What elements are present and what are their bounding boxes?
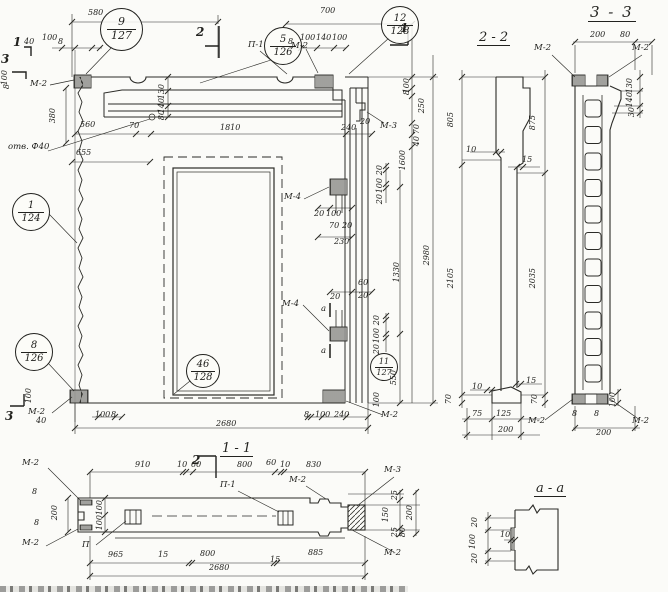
section-cut-number: 3 bbox=[1, 53, 9, 65]
dimension-label: 100 bbox=[373, 392, 381, 407]
dimension-label: 250 bbox=[418, 98, 426, 113]
dimension-label: 20 bbox=[376, 165, 384, 175]
dimension-label: 20 bbox=[376, 194, 384, 204]
dimension-label: 10 bbox=[472, 383, 482, 391]
dimension-label: 150 bbox=[382, 507, 390, 522]
detail-a-a-title: а - а bbox=[534, 482, 566, 497]
dimension-label: 100 bbox=[376, 178, 384, 193]
embed-label: М-2 bbox=[291, 42, 308, 51]
dimension-label: 100 bbox=[609, 392, 617, 407]
dimension-label: 40 bbox=[24, 38, 34, 46]
dimension-label: 10 bbox=[177, 461, 187, 469]
dimension-label: 80 bbox=[399, 527, 407, 537]
dimension-label: 100 bbox=[300, 34, 315, 42]
dimension-label: 125 bbox=[496, 410, 511, 418]
dimension-label: 875 bbox=[529, 115, 537, 130]
dimension-label: 1810 bbox=[220, 124, 240, 132]
dimension-label: 15 bbox=[270, 556, 280, 564]
dimension-label: 100 bbox=[96, 500, 104, 515]
dimension-label: 700 bbox=[320, 7, 335, 15]
dimension-label: 655 bbox=[76, 149, 91, 157]
dimension-label: 140 bbox=[316, 34, 331, 42]
detail-callout: 1 124 bbox=[12, 193, 50, 231]
callout-detail-number: 9 bbox=[107, 16, 137, 30]
dimension-label: 20 bbox=[314, 210, 324, 218]
dimension-label: 20 bbox=[373, 344, 381, 354]
dimension-label: 800 bbox=[200, 550, 215, 558]
dimension-label: 2680 bbox=[216, 420, 236, 428]
embed-label: М-3 bbox=[380, 122, 397, 131]
scan-artifact-strip bbox=[0, 586, 408, 592]
dimension-label: 240 bbox=[334, 411, 349, 419]
dimension-label: 10 bbox=[280, 461, 290, 469]
section-cut-number: 1 bbox=[13, 36, 21, 48]
embed-label: а bbox=[321, 347, 326, 356]
dimension-label: 100 bbox=[42, 34, 57, 42]
dimension-label: 805 bbox=[447, 112, 455, 127]
dimension-label: 20 bbox=[373, 315, 381, 325]
section-cut-number: 2 bbox=[196, 26, 204, 38]
embed-label: П-1 bbox=[248, 41, 264, 50]
dimension-label: 240 bbox=[341, 124, 356, 132]
embed-label: М-2 bbox=[632, 44, 649, 53]
dimension-label: 8 bbox=[32, 488, 37, 496]
section-1-1-title: 1 - 1 bbox=[220, 442, 253, 457]
dimension-label: 15 bbox=[522, 156, 532, 164]
dimension-label: 70 bbox=[329, 222, 339, 230]
blueprint-page: 2 - 2 3 - 3 1 - 1 а - а 9 127 5 126 12 1… bbox=[0, 0, 668, 592]
dimension-label: 8 bbox=[288, 38, 293, 46]
callout-sheet-number: 124 bbox=[18, 213, 44, 225]
dimension-label: 230 bbox=[334, 238, 349, 246]
dimension-label: 580 bbox=[88, 9, 103, 17]
dimension-label: 75 bbox=[472, 410, 482, 418]
callout-detail-number: 1 bbox=[18, 200, 44, 213]
embed-label: М-2 bbox=[384, 549, 401, 558]
dimension-label: 60 bbox=[358, 279, 368, 287]
dimension-label: 8 bbox=[111, 411, 116, 419]
embed-label: М-3 bbox=[384, 466, 401, 475]
dimension-label: 70 bbox=[531, 394, 539, 404]
callout-detail-number: 8 bbox=[21, 340, 47, 353]
embed-label: М-4 bbox=[284, 193, 301, 202]
callout-sheet-number: 127 bbox=[107, 30, 137, 43]
dimension-label: 100 bbox=[95, 411, 110, 419]
dimension-label: 130 bbox=[158, 84, 166, 99]
dimension-label: 100 bbox=[469, 534, 477, 549]
dimension-label: 80 bbox=[620, 31, 630, 39]
section-cut-number: 3 bbox=[5, 410, 13, 422]
embed-label: М-2 bbox=[381, 411, 398, 420]
dimension-label: 830 bbox=[306, 461, 321, 469]
dimension-label: 560 bbox=[80, 121, 95, 129]
dimension-label: 8 bbox=[304, 411, 309, 419]
dimension-label: 1600 bbox=[399, 150, 407, 170]
dimension-label: 10 bbox=[466, 146, 476, 154]
dimension-label: 885 bbox=[308, 549, 323, 557]
dimension-label: 8 bbox=[3, 84, 11, 89]
dimension-label: 8 bbox=[34, 519, 39, 527]
dimension-label: 8 bbox=[572, 410, 577, 418]
dimension-label: 8 bbox=[58, 38, 63, 46]
embed-label: М-2 bbox=[632, 417, 649, 426]
dimension-label: 2035 bbox=[529, 268, 537, 288]
dimension-label: 100 bbox=[332, 34, 347, 42]
dimension-label: 15 bbox=[158, 551, 168, 559]
callout-sheet-number: 128 bbox=[191, 372, 214, 384]
dimension-label: 100 bbox=[315, 411, 330, 419]
dimension-label: 40 bbox=[36, 417, 46, 425]
dimension-label: 30 bbox=[628, 107, 636, 117]
annotation-layer: 2 - 2 3 - 3 1 - 1 а - а 9 127 5 126 12 1… bbox=[0, 0, 668, 592]
callout-sheet-number: 126 bbox=[21, 353, 47, 365]
dimension-label: 100 bbox=[1, 70, 9, 85]
dimension-label: 2680 bbox=[209, 564, 229, 572]
embed-label: М-2 bbox=[528, 417, 545, 426]
dimension-label: 15 bbox=[526, 377, 536, 385]
dimension-label: 20 bbox=[342, 222, 352, 230]
dimension-label: 200 bbox=[406, 505, 414, 520]
section-cut-number: 1 bbox=[400, 22, 408, 34]
embed-label: М-4 bbox=[282, 300, 299, 309]
embed-label: П-1 bbox=[220, 481, 236, 490]
dimension-label: 20 bbox=[471, 517, 479, 527]
dimension-label: 800 bbox=[237, 461, 252, 469]
dimension-label: 100 bbox=[25, 388, 33, 403]
dimension-label: 8 bbox=[594, 410, 599, 418]
dimension-label: 100 bbox=[373, 328, 381, 343]
section-3-3-title: 3 - 3 bbox=[588, 5, 636, 22]
dimension-label: 20 bbox=[358, 292, 368, 300]
dimension-label: 2980 bbox=[423, 245, 431, 265]
dimension-label: 80 bbox=[158, 110, 166, 120]
dimension-label: 100 bbox=[326, 210, 341, 218]
section-2-2-title: 2 - 2 bbox=[477, 31, 510, 46]
embed-label: М-2 bbox=[534, 44, 551, 53]
dimension-label: 910 bbox=[135, 461, 150, 469]
dimension-label: 130 bbox=[626, 78, 634, 93]
dimension-label: 100 bbox=[96, 515, 104, 530]
detail-callout: 9 127 bbox=[100, 8, 143, 51]
dimension-label: 60 bbox=[191, 461, 201, 469]
dimension-label: 200 bbox=[590, 31, 605, 39]
dimension-label: 20 bbox=[330, 293, 340, 301]
detail-callout: 8 126 bbox=[15, 333, 53, 371]
callout-detail-number: 46 bbox=[191, 359, 214, 372]
dimension-label: 20 bbox=[360, 118, 370, 126]
embed-label: М-2 bbox=[289, 476, 306, 485]
embed-label: М-2 bbox=[22, 459, 39, 468]
dimension-label: 10 bbox=[500, 531, 510, 539]
dimension-label: 550 bbox=[390, 370, 398, 385]
dimension-label: 20 bbox=[471, 553, 479, 563]
embed-label: М-2 bbox=[30, 80, 47, 89]
dimension-label: 380 bbox=[49, 108, 57, 123]
detail-callout: 46 128 bbox=[186, 354, 220, 388]
callout-detail-number: 11 bbox=[375, 357, 394, 367]
dimension-label: 60 bbox=[266, 459, 276, 467]
dimension-label: 1330 bbox=[393, 262, 401, 282]
embed-label: М-2 bbox=[22, 539, 39, 548]
dimension-label: 200 bbox=[596, 429, 611, 437]
dimension-label: 70 bbox=[445, 394, 453, 404]
embed-label: отв. Ф40 bbox=[8, 143, 49, 152]
embed-label: а bbox=[321, 305, 326, 314]
dimension-label: 965 bbox=[108, 551, 123, 559]
dimension-label: 140 bbox=[626, 92, 634, 107]
dimension-label: 200 bbox=[498, 426, 513, 434]
dimension-label: 40 bbox=[413, 136, 421, 146]
dimension-label: 8 bbox=[403, 90, 411, 95]
dimension-label: 25 bbox=[391, 490, 399, 500]
dimension-label: 70 bbox=[129, 122, 139, 130]
dimension-label: 200 bbox=[51, 505, 59, 520]
dimension-label: 70 bbox=[413, 124, 421, 134]
dimension-label: 2105 bbox=[447, 268, 455, 288]
embed-label: П bbox=[82, 541, 89, 550]
